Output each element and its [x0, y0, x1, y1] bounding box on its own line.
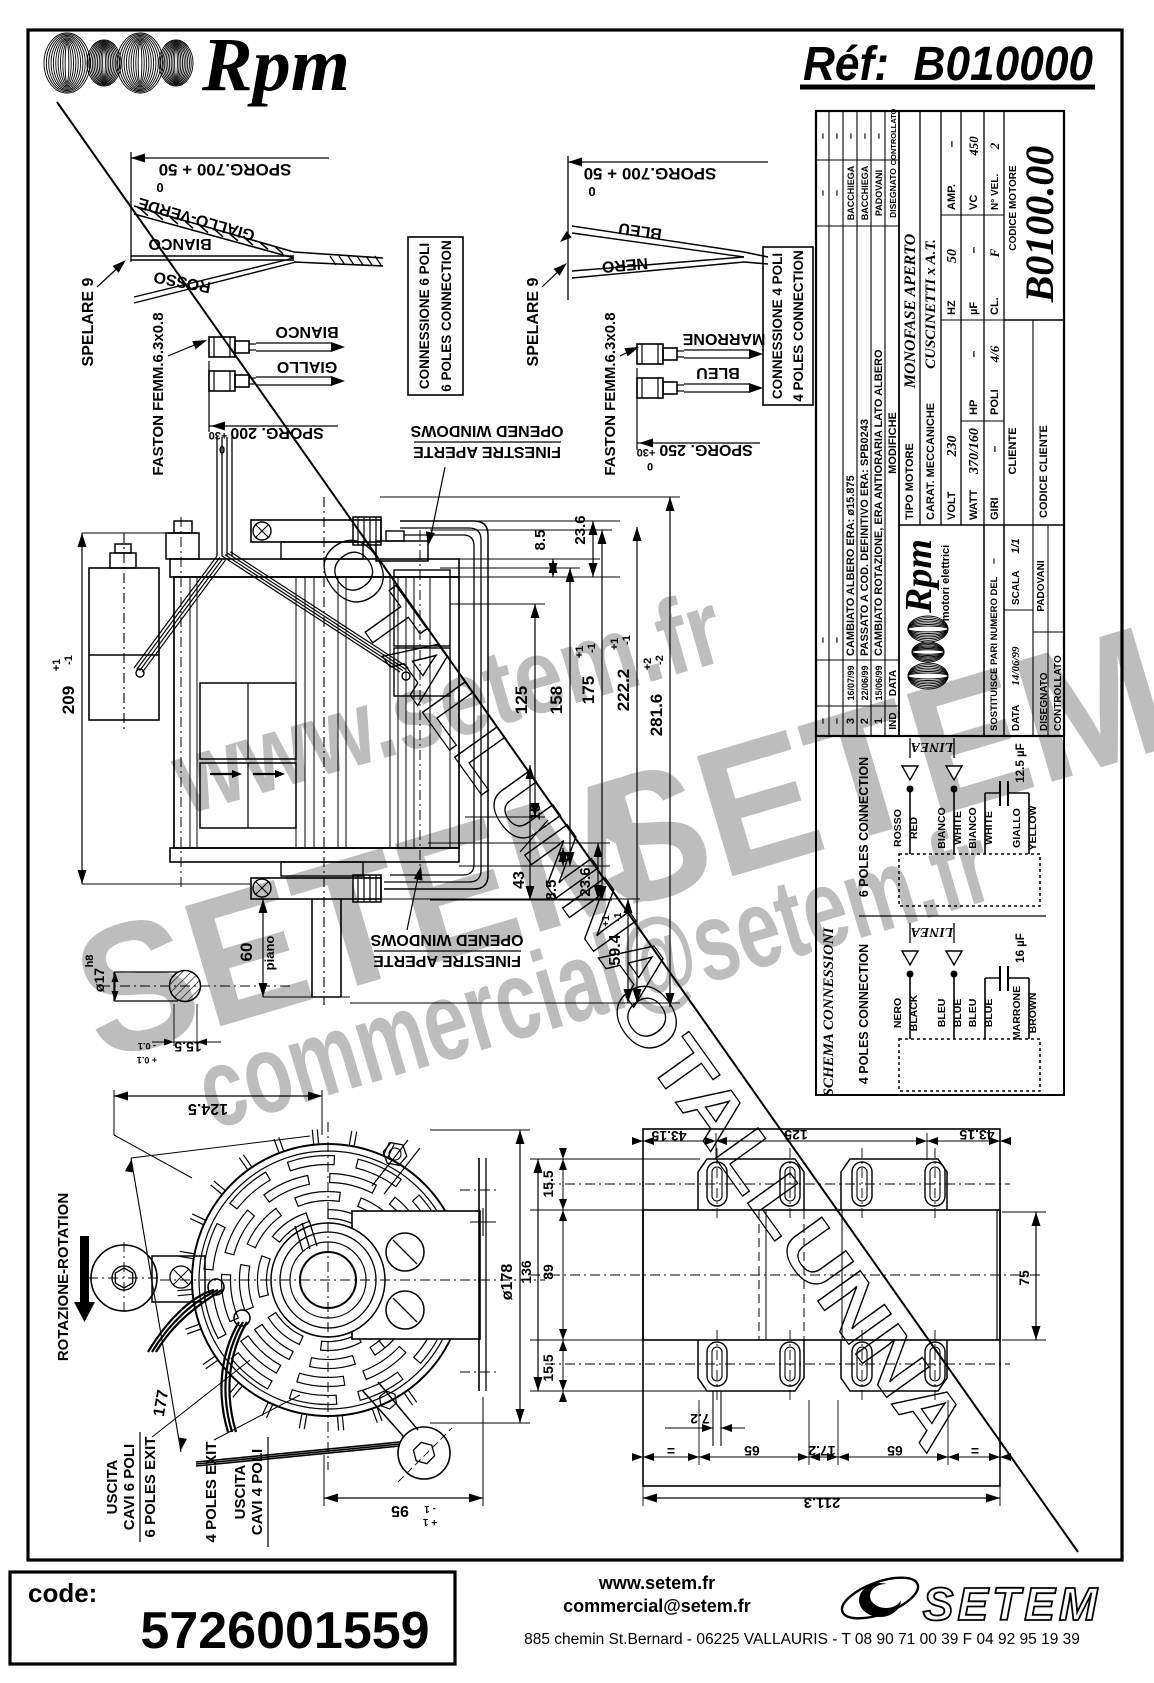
- svg-text:450: 450: [966, 136, 981, 157]
- svg-text:DATA: DATA: [1011, 705, 1022, 731]
- svg-text:OPENED WINDOWS: OPENED WINDOWS: [410, 422, 563, 439]
- svg-text:LINEA: LINEA: [911, 739, 955, 754]
- svg-text:–: –: [859, 133, 871, 139]
- svg-text:124.5: 124.5: [188, 1100, 228, 1117]
- svg-text:BLEU: BLEU: [967, 999, 979, 1028]
- svg-text:–: –: [845, 133, 857, 139]
- svg-text:F: F: [987, 248, 1002, 258]
- svg-text:–: –: [817, 718, 829, 724]
- svg-text:=: =: [971, 1443, 979, 1459]
- svg-text:BLACK: BLACK: [908, 994, 920, 1031]
- svg-text:SPORG.700 + 50: SPORG.700 + 50: [159, 160, 292, 179]
- svg-text:BIANCO: BIANCO: [967, 807, 979, 848]
- svg-text:4 POLES EXIT: 4 POLES EXIT: [203, 1442, 220, 1543]
- svg-text:6 POLES EXIT: 6 POLES EXIT: [142, 1437, 159, 1538]
- svg-text:5726001559: 5726001559: [140, 1602, 429, 1660]
- svg-text:175: 175: [579, 676, 598, 704]
- svg-text:43.15: 43.15: [651, 1128, 686, 1144]
- svg-text:USCITA: USCITA: [232, 1464, 249, 1519]
- svg-text:SOSTITUISCE PARI NUMERO DEL: SOSTITUISCE PARI NUMERO DEL: [989, 576, 1000, 731]
- svg-text:BIANCO: BIANCO: [936, 807, 948, 848]
- svg-text:281.6: 281.6: [647, 694, 666, 737]
- svg-text:59.4: 59.4: [607, 934, 624, 965]
- svg-text:µF: µF: [968, 302, 980, 315]
- svg-text:- 0.1: - 0.1: [138, 1041, 156, 1051]
- svg-text:PADOVANI: PADOVANI: [1036, 560, 1047, 612]
- svg-text:BLEU: BLEU: [936, 999, 948, 1028]
- svg-text:–: –: [944, 140, 958, 147]
- svg-text:ROTAZIONE-ROTATION: ROTAZIONE-ROTATION: [55, 1193, 72, 1361]
- svg-text:0: 0: [647, 460, 653, 472]
- svg-text:CUSCINETTI x A.T.: CUSCINETTI x A.T.: [923, 239, 939, 369]
- svg-text:NERO: NERO: [892, 998, 904, 1028]
- svg-text:www.setem.fr: www.setem.fr: [598, 1573, 715, 1593]
- svg-text:65: 65: [744, 1443, 760, 1459]
- svg-text:–: –: [966, 246, 980, 253]
- svg-text:211.3: 211.3: [804, 1494, 841, 1511]
- svg-text:commercial@setem.fr: commercial@setem.fr: [563, 1596, 751, 1616]
- svg-text:LINEA: LINEA: [911, 924, 955, 939]
- svg-text:–: –: [817, 133, 829, 139]
- svg-text:22/06/99: 22/06/99: [860, 665, 870, 700]
- svg-text:17.2: 17.2: [808, 1443, 835, 1459]
- svg-text:–: –: [817, 637, 829, 643]
- svg-text:FASTON FEMM.6.3x0.8: FASTON FEMM.6.3x0.8: [150, 312, 167, 475]
- svg-text:8.5: 8.5: [543, 880, 560, 901]
- svg-text:GIALLO: GIALLO: [277, 358, 337, 375]
- svg-text:15/06/99: 15/06/99: [874, 665, 884, 700]
- svg-text:motori elettrici: motori elettrici: [940, 545, 952, 621]
- svg-text:B0100.00: B0100.00: [1017, 146, 1062, 304]
- svg-text:209: 209: [59, 686, 78, 714]
- svg-text:HZ: HZ: [946, 300, 958, 315]
- svg-text:2: 2: [987, 142, 1002, 150]
- svg-text:HP: HP: [968, 400, 980, 415]
- svg-text:CONTROLLATO: CONTROLLATO: [1053, 655, 1064, 731]
- svg-text:CAVI 6 POLI: CAVI 6 POLI: [121, 1444, 138, 1530]
- svg-text:SCHEMA CONNESSIONI: SCHEMA CONNESSIONI: [821, 926, 837, 1096]
- svg-text:FINESTRE APERTE: FINESTRE APERTE: [373, 952, 521, 969]
- svg-text:-1: -1: [621, 635, 633, 645]
- svg-text:FASTON FEMM.6.3x0.8: FASTON FEMM.6.3x0.8: [602, 312, 619, 475]
- svg-text:23.6: 23.6: [577, 867, 594, 896]
- svg-text:–: –: [831, 133, 843, 139]
- svg-text:CLIENTE: CLIENTE: [1007, 427, 1019, 474]
- svg-text:12.5 µF: 12.5 µF: [1015, 743, 1027, 782]
- svg-text:+30: +30: [637, 446, 656, 458]
- svg-text:RED: RED: [908, 816, 920, 839]
- svg-text:–: –: [987, 445, 1001, 452]
- svg-text:158: 158: [547, 686, 566, 714]
- svg-text:43.15: 43.15: [959, 1127, 994, 1143]
- svg-text:BROWN: BROWN: [1027, 993, 1039, 1034]
- svg-text:Rpm: Rpm: [898, 539, 940, 614]
- svg-text:65: 65: [887, 1443, 903, 1459]
- svg-text:2: 2: [859, 718, 871, 724]
- svg-text:75: 75: [1016, 1270, 1032, 1286]
- svg-text:GIALLO: GIALLO: [1011, 808, 1023, 848]
- svg-text:=: =: [667, 1443, 675, 1459]
- svg-text:AMP.: AMP.: [946, 184, 958, 210]
- svg-text:CODICE CLIENTE: CODICE CLIENTE: [1038, 425, 1050, 518]
- svg-text:ø178: ø178: [499, 1264, 516, 1301]
- svg-text:SPELARE 9: SPELARE 9: [525, 277, 542, 366]
- svg-text:–: –: [988, 558, 1000, 564]
- svg-text:ROSSO: ROSSO: [892, 809, 904, 847]
- svg-text:WHITE: WHITE: [983, 811, 995, 845]
- svg-text:CAMBIATO ALBERO ERA: ø15.875: CAMBIATO ALBERO ERA: ø15.875: [845, 475, 857, 656]
- svg-text:BIANCO: BIANCO: [148, 235, 211, 252]
- svg-text:6 POLES CONNECTION: 6 POLES CONNECTION: [439, 240, 454, 392]
- svg-text:CONNESSIONE 4 POLI: CONNESSIONE 4 POLI: [770, 253, 785, 399]
- svg-text:222.2: 222.2: [614, 669, 633, 712]
- svg-text:+1: +1: [609, 638, 621, 651]
- svg-text:DATA: DATA: [888, 670, 899, 696]
- svg-text:SCALA: SCALA: [1011, 571, 1022, 605]
- svg-text:43: 43: [511, 871, 528, 889]
- svg-text:–: –: [966, 350, 980, 357]
- svg-text:SETEM: SETEM: [923, 1578, 1101, 1630]
- svg-text:–: –: [831, 637, 843, 643]
- svg-text:15: 15: [527, 804, 544, 821]
- svg-text:7.2: 7.2: [690, 1411, 710, 1427]
- svg-text:-1: -1: [613, 912, 624, 921]
- svg-text:+1: +1: [574, 646, 586, 659]
- svg-text:- 1: - 1: [424, 1503, 436, 1514]
- svg-text:YELLOW: YELLOW: [1027, 805, 1039, 850]
- svg-text:+30: +30: [209, 429, 228, 441]
- svg-text:VOLT: VOLT: [946, 491, 958, 520]
- svg-text:230: 230: [945, 436, 960, 458]
- svg-text:USCITA: USCITA: [104, 1459, 121, 1514]
- svg-text:–: –: [831, 718, 843, 724]
- svg-text:14/06/99: 14/06/99: [1010, 646, 1022, 686]
- svg-text:piano: piano: [262, 936, 277, 971]
- svg-text:+1: +1: [601, 915, 612, 927]
- svg-text:VC: VC: [968, 195, 980, 210]
- svg-text:95: 95: [391, 1502, 409, 1519]
- svg-text:BACCHIEGA: BACCHIEGA: [846, 165, 856, 220]
- svg-text:16/07/99: 16/07/99: [846, 665, 856, 700]
- svg-text:–: –: [873, 133, 885, 139]
- svg-text:1/1: 1/1: [1010, 538, 1022, 553]
- svg-text:CARAT. MECCANICHE: CARAT. MECCANICHE: [925, 403, 937, 520]
- svg-text:WATT: WATT: [968, 489, 980, 520]
- svg-text:15.5: 15.5: [540, 1170, 556, 1197]
- svg-text:–: –: [831, 190, 843, 196]
- svg-text:POLI: POLI: [989, 389, 1001, 415]
- svg-text:BACCHIEGA: BACCHIEGA: [860, 165, 870, 220]
- svg-text:N° VEL.: N° VEL.: [990, 174, 1001, 210]
- svg-text:136: 136: [518, 1260, 534, 1284]
- svg-text:Rpm: Rpm: [201, 23, 350, 107]
- svg-text:SPORG. 250: SPORG. 250: [659, 441, 752, 458]
- svg-text:BIANCO: BIANCO: [275, 323, 338, 340]
- svg-text:+ 0.1: + 0.1: [137, 1055, 157, 1065]
- svg-text:8.5: 8.5: [532, 530, 549, 551]
- svg-text:60: 60: [237, 943, 256, 962]
- svg-text:BLUE: BLUE: [952, 999, 964, 1028]
- svg-text:TIPO MOTORE: TIPO MOTORE: [904, 443, 916, 520]
- svg-text:15.5: 15.5: [174, 1039, 201, 1055]
- svg-text:6 POLES CONNECTION: 6 POLES CONNECTION: [857, 757, 871, 897]
- svg-text:MARRONE: MARRONE: [1011, 986, 1023, 1040]
- svg-text:89: 89: [540, 1264, 556, 1280]
- svg-text:CONTROLLATO: CONTROLLATO: [889, 108, 898, 165]
- svg-text:h8: h8: [84, 955, 96, 968]
- svg-text:125: 125: [784, 1127, 808, 1143]
- svg-text:SPELARE 9: SPELARE 9: [80, 277, 97, 366]
- svg-text:code:: code:: [28, 1578, 97, 1608]
- svg-text:–: –: [817, 190, 829, 196]
- svg-text:IND: IND: [888, 712, 899, 729]
- svg-text:MONOFASE APERTO: MONOFASE APERTO: [902, 233, 919, 389]
- svg-text:DISEGNATO: DISEGNATO: [888, 168, 898, 218]
- svg-text:0: 0: [156, 180, 163, 195]
- svg-text:15.5: 15.5: [540, 1354, 556, 1381]
- svg-text:125: 125: [512, 686, 531, 714]
- svg-text:CAVI 4 POLI: CAVI 4 POLI: [249, 1449, 266, 1535]
- svg-text:MODIFICHE: MODIFICHE: [887, 412, 899, 474]
- svg-text:Réf: B010000: Réf: B010000: [803, 38, 1093, 91]
- svg-text:+1: +1: [51, 659, 63, 672]
- svg-text:CAMBIATO ROTAZIONE, ERA ANTIOR: CAMBIATO ROTAZIONE, ERA ANTIORARIA LATO …: [873, 349, 885, 656]
- svg-text:50: 50: [945, 249, 960, 263]
- svg-text:16 µF: 16 µF: [1015, 933, 1027, 963]
- svg-text:3: 3: [845, 718, 857, 724]
- svg-text:0: 0: [588, 184, 595, 199]
- svg-text:DISEGNATO: DISEGNATO: [1039, 672, 1050, 731]
- svg-text:-1: -1: [63, 655, 75, 665]
- svg-text:FINESTRE APERTE: FINESTRE APERTE: [413, 443, 561, 460]
- svg-text:CL.: CL.: [989, 297, 1001, 315]
- svg-text:SPORG. 200: SPORG. 200: [230, 424, 323, 441]
- svg-text:CONNESSIONE 6 POLI: CONNESSIONE 6 POLI: [417, 243, 432, 389]
- svg-text:BLEU: BLEU: [696, 364, 740, 381]
- svg-text:SPORG.700 + 50: SPORG.700 + 50: [584, 164, 717, 183]
- svg-text:-2: -2: [654, 655, 666, 665]
- svg-text:+ 1: + 1: [422, 1516, 437, 1527]
- svg-text:4 POLES CONNECTION: 4 POLES CONNECTION: [791, 250, 806, 402]
- svg-text:4 POLES CONNECTION: 4 POLES CONNECTION: [857, 944, 871, 1084]
- svg-text:370/160: 370/160: [967, 428, 982, 475]
- svg-text:4/6: 4/6: [987, 345, 1002, 363]
- svg-text:PASSATO A COD. DEFINITIVO ERA:: PASSATO A COD. DEFINITIVO ERA: SPB0243: [859, 419, 871, 656]
- svg-text:MARRONE: MARRONE: [682, 330, 765, 347]
- svg-text:885 chemin St.Bernard - 0622: 885 chemin St.Bernard - 06225 VALLAURIS …: [524, 1631, 1080, 1648]
- svg-text:GIRI: GIRI: [989, 497, 1001, 520]
- svg-text:OPENED WINDOWS: OPENED WINDOWS: [370, 931, 523, 948]
- svg-text:-1: -1: [586, 643, 598, 653]
- svg-text:+2: +2: [642, 658, 654, 671]
- svg-text:BLUE: BLUE: [983, 999, 995, 1028]
- svg-text:ø17: ø17: [91, 968, 107, 992]
- svg-text:PADOVANI: PADOVANI: [874, 170, 884, 216]
- svg-text:1: 1: [873, 718, 885, 724]
- svg-text:WHITE: WHITE: [952, 811, 964, 845]
